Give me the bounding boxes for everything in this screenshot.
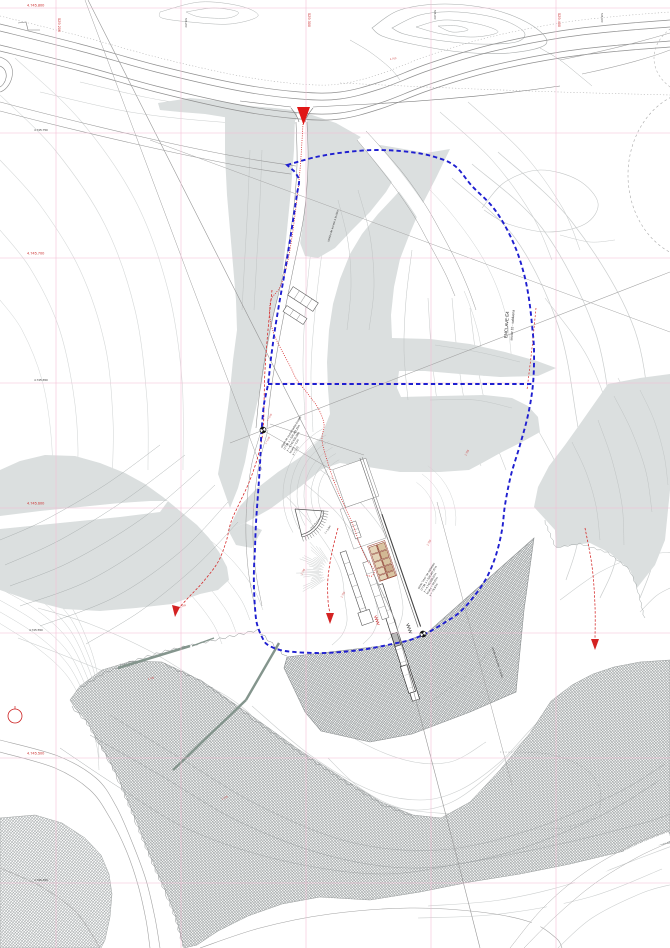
svg-text:4.745.450: 4.745.450 [34,878,48,882]
svg-text:4.745.650: 4.745.650 [34,378,48,382]
svg-text:4.745.700: 4.745.700 [27,251,45,256]
svg-text:4.745.500: 4.745.500 [27,751,45,756]
svg-text:528.400: 528.400 [600,13,604,23]
svg-text:529 200: 529 200 [57,18,62,33]
svg-text:508.200: 508.200 [184,18,188,28]
svg-text:529 400: 529 400 [557,13,562,28]
svg-text:4.745.750: 4.745.750 [34,128,48,132]
svg-text:4.745.600: 4.745.600 [27,501,45,506]
svg-text:4.745.550: 4.745.550 [29,628,43,632]
svg-text:4.745.800: 4.745.800 [27,3,45,8]
svg-text:529 300: 529 300 [307,13,312,28]
svg-text:508.300: 508.300 [433,10,437,20]
